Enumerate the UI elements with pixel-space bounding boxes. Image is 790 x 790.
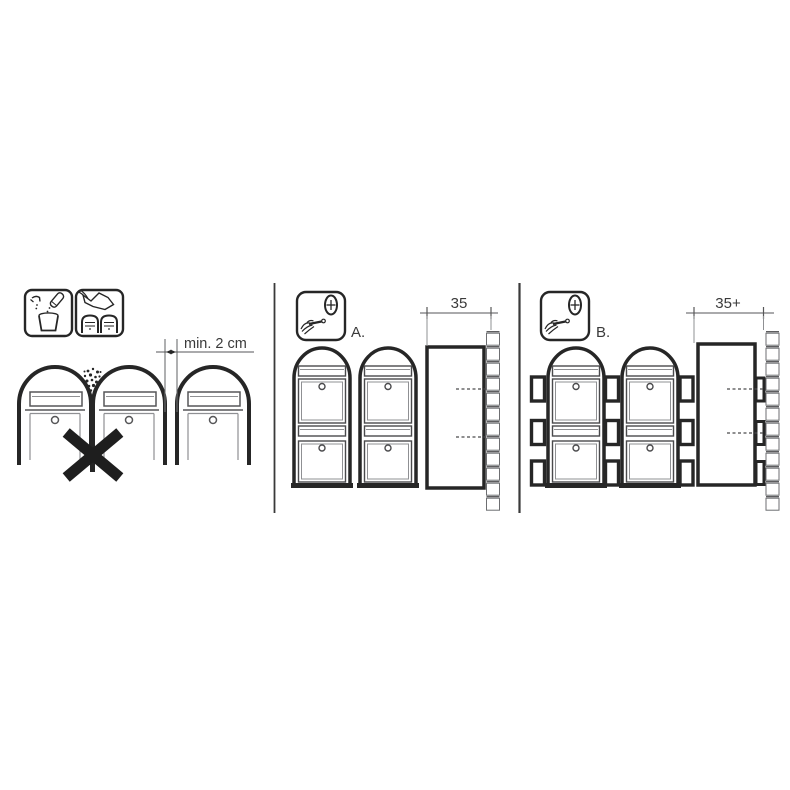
mailbox-b-1 bbox=[545, 348, 607, 486]
panel-spacing: min. 2 cm bbox=[19, 290, 254, 482]
dim-arrow-right bbox=[171, 350, 177, 355]
mailbox-a-1 bbox=[291, 348, 353, 486]
mount-brackets-side bbox=[756, 378, 764, 485]
wipe-mailbox-icon bbox=[76, 290, 123, 336]
mailbox-a-2 bbox=[357, 348, 419, 486]
manual-page: min. 2 cm A. bbox=[0, 0, 790, 790]
screwdriver-screw-icon-b bbox=[541, 292, 589, 340]
mailbox-side-view-a bbox=[427, 347, 484, 488]
panel-option-b: B. bbox=[532, 292, 780, 510]
wall-section-a bbox=[487, 332, 500, 511]
min-2cm-label: min. 2 cm bbox=[184, 336, 247, 352]
mailbox-b-2 bbox=[619, 348, 681, 486]
panel-option-a: A. 35 bbox=[291, 292, 500, 510]
dimension-35plus: 35+ bbox=[686, 295, 774, 343]
option-a-label: A. bbox=[351, 324, 365, 341]
mailbox-side-view-b bbox=[698, 344, 755, 485]
dimension-35plus-label: 35+ bbox=[715, 295, 741, 312]
dimension-35-label: 35 bbox=[451, 295, 468, 312]
screwdriver-screw-icon-a bbox=[297, 292, 345, 340]
mailbox-front-3 bbox=[177, 367, 249, 465]
mix-water-icon bbox=[25, 290, 72, 336]
installation-diagram: min. 2 cm A. bbox=[0, 0, 790, 790]
option-b-label: B. bbox=[596, 324, 610, 341]
wall-section-b bbox=[766, 332, 779, 511]
